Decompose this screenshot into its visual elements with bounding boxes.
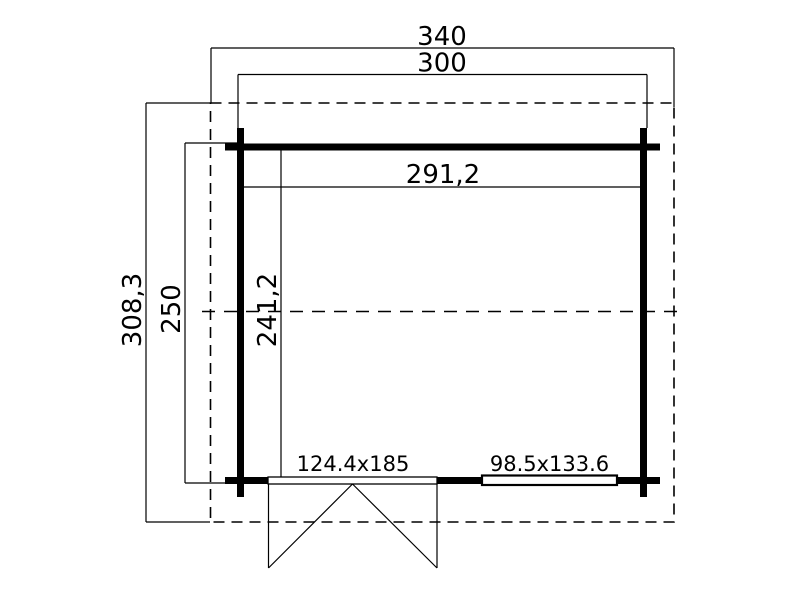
dim-interior-width-label: 291,2 (406, 160, 480, 190)
dimension-interior-depth: 241,2 (253, 151, 283, 478)
dimension-interior-width: 291,2 (244, 160, 640, 190)
dim-outer-depth-label: 308,3 (118, 273, 148, 347)
dim-wall-width-label: 300 (417, 49, 467, 79)
window (482, 476, 617, 486)
floor-plan-drawing: 340 300 291,2 308,3 250 (0, 0, 800, 600)
floor-plan-page: 340 300 291,2 308,3 250 (0, 0, 800, 600)
door-threshold (268, 477, 437, 484)
dimension-wall-width: 300 (238, 49, 647, 144)
dim-interior-depth-label: 241,2 (253, 273, 283, 347)
door-swing (269, 484, 438, 568)
dim-outer-width-label: 340 (417, 22, 467, 52)
dim-wall-depth-label: 250 (157, 284, 187, 334)
dimension-wall-depth: 250 (157, 143, 237, 483)
door-size-label: 124.4x185 (297, 452, 410, 476)
window-size-label: 98.5x133.6 (490, 452, 609, 476)
